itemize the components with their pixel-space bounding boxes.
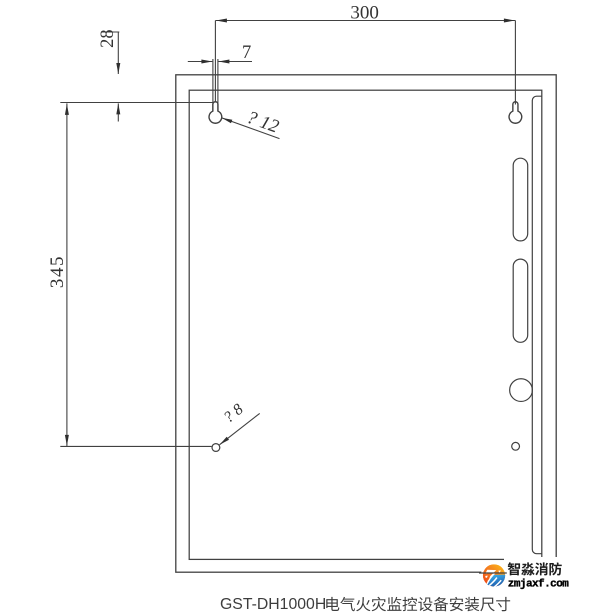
svg-text:28: 28: [98, 29, 118, 48]
svg-text:345: 345: [47, 255, 68, 288]
svg-text:GST-DH1000H: GST-DH1000H: [220, 596, 326, 613]
svg-text:zmjaxf.com: zmjaxf.com: [508, 578, 569, 590]
svg-text:300: 300: [350, 3, 379, 24]
svg-text:7: 7: [242, 43, 251, 63]
